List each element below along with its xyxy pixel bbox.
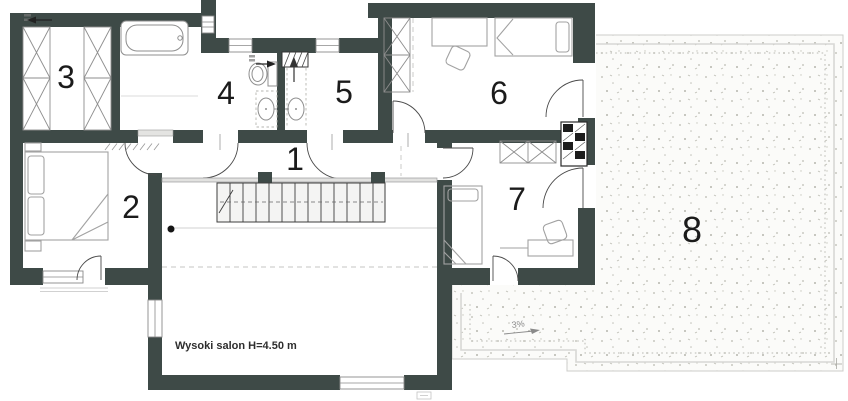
door-room7: [443, 148, 473, 178]
floor-plan: 3%: [0, 0, 848, 401]
door-room6-terrace: [546, 80, 583, 117]
wall-salon-left-b: [148, 337, 162, 375]
washbasin-room4: [256, 91, 277, 127]
window-room4-top: [229, 39, 252, 52]
nightstand: [25, 143, 41, 151]
chair-room6: [445, 45, 472, 72]
wall-salon-bottom-a: [148, 375, 340, 390]
bed-room2: [25, 143, 108, 251]
wall-top-right: [368, 3, 595, 18]
wall-salon-left-a: [148, 173, 162, 300]
bathtub: [121, 21, 188, 55]
salon-height-note: Wysoki salon H=4.50 m: [175, 340, 297, 352]
room-number-5: 5: [335, 74, 353, 110]
desk-room7: [500, 240, 573, 256]
wall-top-mid-c: [339, 38, 381, 53]
wall-room2-bottom-a: [10, 268, 43, 285]
toilet: [249, 62, 277, 86]
wall-hall-a: [10, 130, 138, 143]
wall-room7-bottom-b: [518, 268, 595, 285]
wall-room5-room6: [378, 18, 392, 143]
door-arc-room4: [203, 143, 238, 178]
window-room2-balcony: [40, 271, 108, 292]
wall-room2-bottom-b: [105, 268, 150, 285]
wardrobe-room3-left: [23, 27, 50, 130]
chimney-right-icon: [561, 122, 587, 166]
wall-left: [10, 13, 23, 285]
wall-top-mid-a: [201, 38, 229, 53]
wall-hall-d: [343, 130, 393, 143]
nightstand: [25, 241, 41, 251]
wardrobe-room3-right: [84, 27, 111, 130]
door-room6: [393, 101, 425, 133]
washbasin-room5: [285, 68, 306, 127]
room-number-1: 1: [286, 141, 304, 177]
railing-post: [371, 172, 385, 183]
threshold-hatch-room3: [105, 144, 159, 151]
window-salon-bottom: [340, 377, 404, 389]
desk-room6: [432, 18, 487, 46]
bed-room6: [495, 18, 572, 56]
room-number-4: 4: [217, 75, 235, 111]
wall-right-upper: [573, 3, 595, 63]
wall-top-mid-b: [252, 38, 316, 53]
door-arc-room2: [125, 143, 157, 175]
window-salon-left: [148, 300, 162, 337]
room-number-8: 8: [682, 209, 702, 250]
wall-room3-room4: [111, 27, 120, 130]
chimney-top-icon: [282, 52, 308, 82]
room-number-6: 6: [490, 75, 508, 111]
terrace-slope-label: 3%: [511, 318, 525, 330]
bottom-survey-marker-icon: [417, 392, 431, 399]
staircase: [217, 183, 385, 222]
wall-salon-right-a: [437, 143, 452, 148]
wall-hall-b: [173, 130, 203, 143]
room-number-3: 3: [57, 59, 75, 95]
room-number-7: 7: [508, 181, 526, 217]
wall-salon-bottom-b: [404, 375, 452, 390]
railing-post: [258, 172, 272, 183]
chair-room7: [542, 219, 568, 245]
door-room7-south: [493, 256, 518, 281]
window-room5-top: [316, 39, 339, 52]
section-point-marker: [168, 226, 175, 233]
room-number-2: 2: [122, 189, 140, 225]
door-room7-terrace: [543, 168, 583, 208]
door-arc-room5: [307, 143, 343, 179]
window-stub: [202, 16, 214, 33]
wardrobe-room7: [500, 141, 556, 163]
lintel-room2-door: [138, 130, 173, 136]
